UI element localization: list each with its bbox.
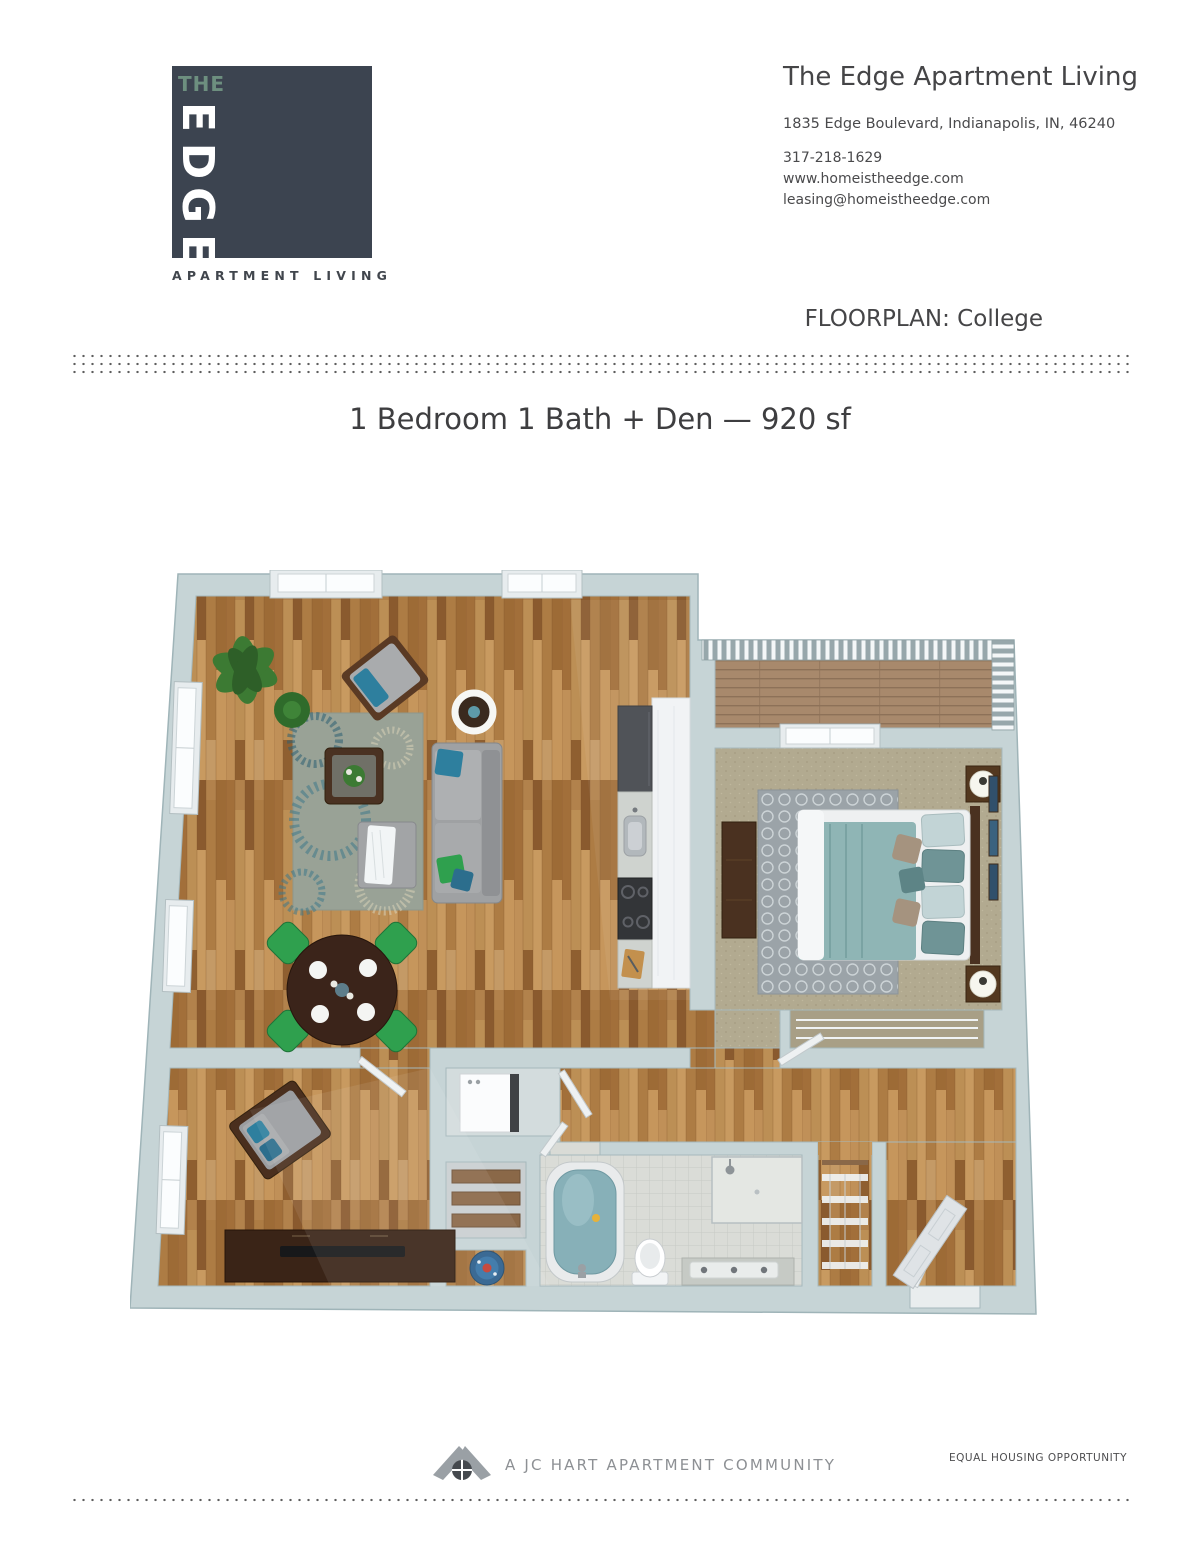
rubber-duck <box>592 1214 600 1222</box>
bedroom-doorway <box>715 1048 780 1068</box>
bed <box>798 806 980 964</box>
email-link: leasing@homeistheedge.com <box>783 190 990 211</box>
phone-number: 317-218-1629 <box>783 148 990 169</box>
flyer-page: THE E D G E APARTMENT LIVING The Edge Ap… <box>0 0 1200 1553</box>
logo-letter-e1: E <box>174 94 220 140</box>
living-window-left-2 <box>162 900 193 993</box>
laundry <box>460 1074 519 1132</box>
sofa <box>432 743 502 903</box>
dotted-separator-bottom <box>70 1496 1135 1504</box>
floorplan-svg <box>130 570 1040 1342</box>
den-window-left <box>156 1126 188 1235</box>
vanity <box>682 1258 794 1285</box>
logo-the-text: THE <box>178 72 225 96</box>
floor-lamp <box>455 693 493 731</box>
kitchen-passage <box>690 1048 715 1068</box>
logo-letter-d: D <box>174 138 220 184</box>
website-link: www.homeistheedge.com <box>783 169 990 190</box>
ottoman <box>358 822 416 888</box>
contact-block: 317-218-1629 www.homeistheedge.com leasi… <box>783 148 990 211</box>
entry-threshold <box>910 1286 980 1308</box>
living-window-top-2 <box>502 570 582 598</box>
dresser <box>722 822 756 938</box>
balcony-deck <box>715 660 994 728</box>
bathroom-doorway <box>550 1142 600 1155</box>
floorplan-rendering <box>130 570 1040 1342</box>
living-window-top-1 <box>270 570 382 598</box>
dining-set <box>264 919 420 1055</box>
logo-tagline: APARTMENT LIVING <box>172 268 376 283</box>
living-window-left-1 <box>170 682 203 815</box>
logo-letter-e2: E <box>174 226 220 272</box>
property-address: 1835 Edge Boulevard, Indianapolis, IN, 4… <box>783 116 1115 132</box>
bedroom-window <box>780 724 880 748</box>
dotted-separator-top <box>70 352 1133 377</box>
jchart-house-icon <box>430 1440 494 1486</box>
wall-art <box>989 776 998 900</box>
coffee-table <box>325 748 383 804</box>
nightstand-bottom <box>966 966 1000 1002</box>
community-credit: A JC HART APARTMENT COMMUNITY <box>505 1456 836 1474</box>
unit-summary-title: 1 Bedroom 1 Bath + Den — 920 sf <box>0 402 1200 436</box>
property-title: The Edge Apartment Living <box>783 62 1138 92</box>
bathtub <box>546 1162 624 1282</box>
headboard <box>970 806 980 964</box>
balcony-railing-top <box>702 640 1014 660</box>
logo-letter-g: G <box>174 182 220 228</box>
balcony-railing-right <box>992 640 1014 730</box>
shower <box>712 1157 802 1223</box>
hallway-floor <box>560 1068 1016 1142</box>
edge-logo: THE E D G E <box>172 66 372 258</box>
floorplan-name-label: FLOORPLAN: College <box>805 306 1043 332</box>
equal-housing-label: EQUAL HOUSING OPPORTUNITY <box>949 1452 1127 1464</box>
bedroom-door-area <box>715 1010 780 1048</box>
closet-doorway <box>818 1142 872 1155</box>
